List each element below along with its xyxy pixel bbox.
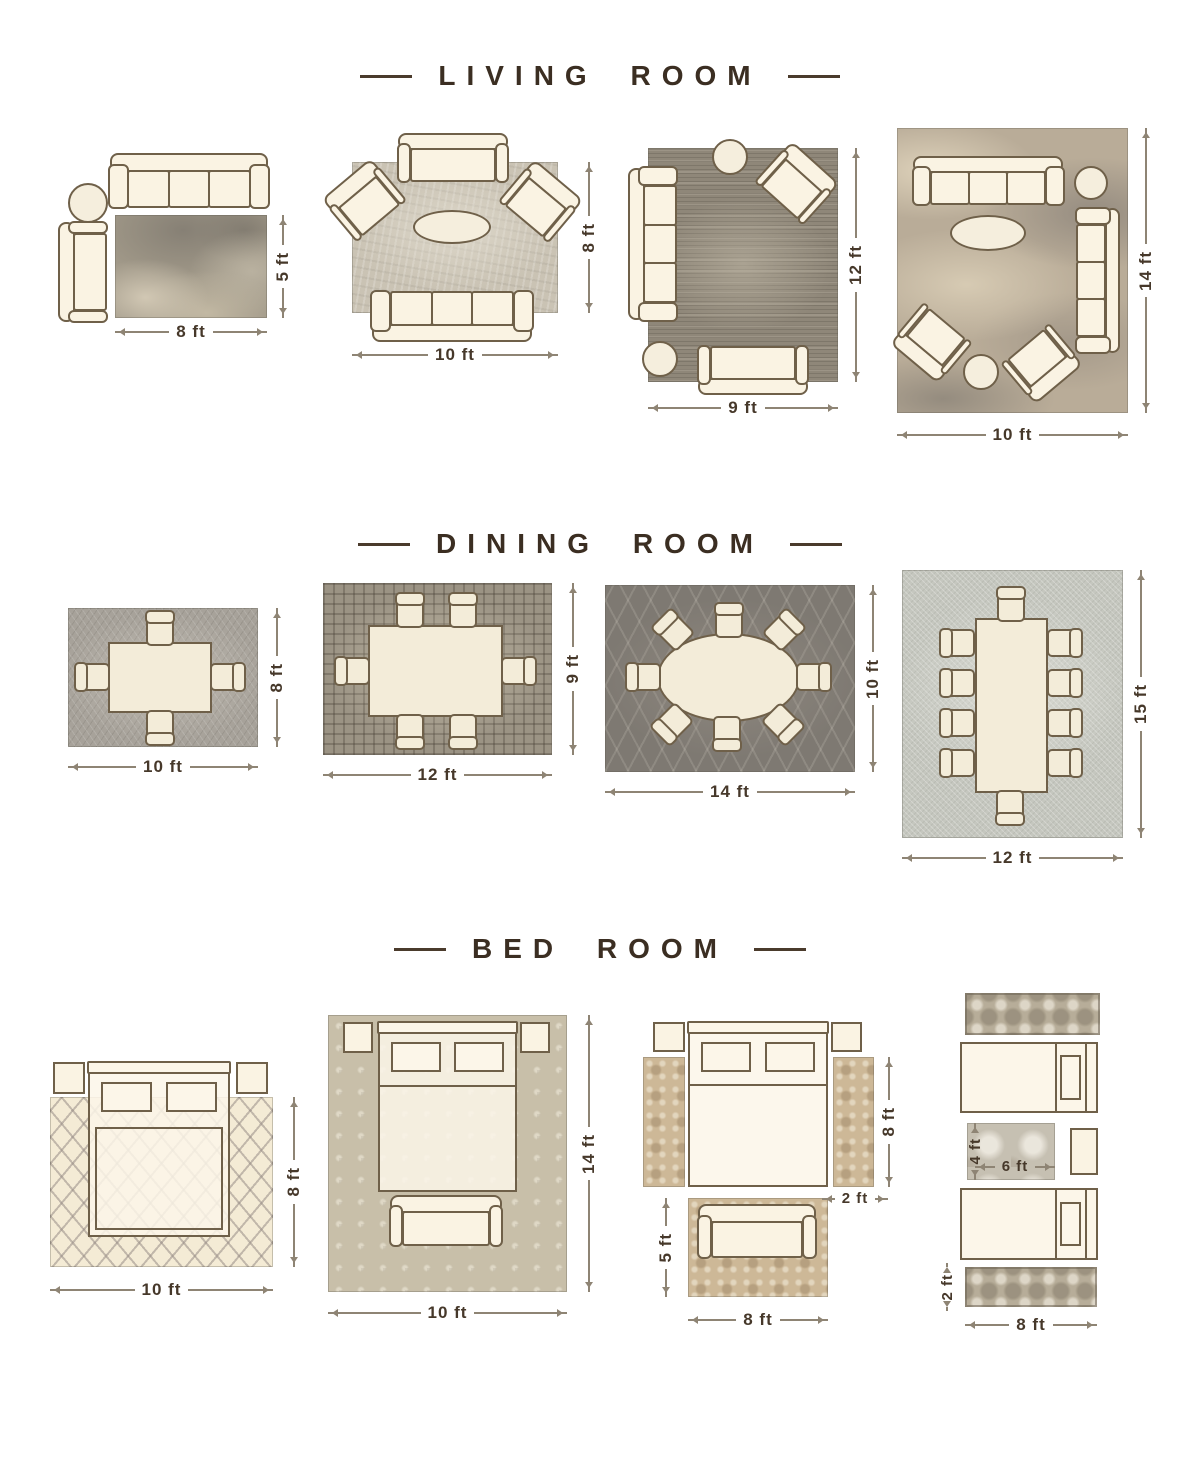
dining-chair: [1047, 669, 1077, 697]
nightstand: [653, 1022, 685, 1052]
bed-fold-line: [1055, 1190, 1057, 1258]
title-rule-right: [790, 543, 842, 546]
dining-chair: [396, 598, 424, 628]
bed: [378, 1022, 517, 1192]
bench: [698, 1204, 816, 1259]
title-rule-right: [754, 948, 806, 951]
pillow: [454, 1042, 504, 1072]
dimension-runner-length: 8 ft: [878, 1057, 900, 1187]
dimension-width: 10 ft: [68, 757, 258, 777]
dimension-width: 10 ft: [328, 1303, 567, 1323]
dining-table: [108, 642, 212, 713]
dining-chair: [449, 598, 477, 628]
sofa: [913, 156, 1063, 206]
pillow: [765, 1042, 815, 1072]
round-side-table: [642, 341, 678, 377]
headboard: [1085, 1188, 1098, 1260]
dimension-runner-height: 2 ft: [936, 1263, 958, 1311]
dimension-height: 9 ft: [562, 583, 584, 755]
dining-chair: [631, 663, 661, 691]
nightstand: [831, 1022, 862, 1052]
round-side-table: [712, 139, 748, 175]
title-rule-right: [788, 75, 840, 78]
dimension-rug-width: 6 ft: [975, 1158, 1055, 1175]
chaise: [58, 222, 108, 322]
pillow: [1060, 1202, 1081, 1247]
twin-bed: [960, 1188, 1098, 1260]
title-rule-left: [360, 75, 412, 78]
dining-chair: [945, 669, 975, 697]
dimension-height: 14 ft: [578, 1015, 600, 1292]
dimension-runner-width: 2 ft: [822, 1190, 888, 1207]
runner-rug: [643, 1057, 685, 1187]
oval-coffee-table: [413, 210, 491, 244]
sofa: [628, 168, 678, 320]
title-rule-left: [394, 948, 446, 951]
sofa: [398, 133, 508, 183]
pillow: [1060, 1055, 1081, 1099]
dimension-height: 8 ft: [283, 1097, 305, 1267]
headboard: [687, 1021, 829, 1034]
headboard: [87, 1061, 231, 1074]
blanket: [690, 1084, 826, 1185]
round-side-table: [1074, 166, 1108, 200]
rug-size-guide: LIVING ROOM 8 ft 5 ft 10 ft 8 ft: [0, 0, 1200, 1467]
dining-chair: [796, 663, 826, 691]
section-title-text: DINING ROOM: [436, 528, 764, 560]
nightstand: [236, 1062, 268, 1094]
dining-chair: [146, 710, 174, 740]
nightstand: [53, 1062, 85, 1094]
dimension-width: 12 ft: [902, 848, 1123, 868]
pillow: [101, 1082, 152, 1112]
bed-fold-line: [1055, 1044, 1057, 1111]
dining-chair: [80, 663, 110, 691]
bed: [688, 1022, 828, 1187]
dining-chair: [396, 714, 424, 744]
round-side-table: [963, 354, 999, 390]
sofa: [110, 153, 268, 209]
sofa: [1075, 208, 1120, 353]
dimension-height: 8 ft: [266, 608, 288, 747]
headboard: [1085, 1042, 1098, 1113]
dining-chair: [945, 709, 975, 737]
runner-rug: [833, 1057, 874, 1187]
headboard: [377, 1021, 518, 1034]
loveseat: [698, 345, 808, 395]
dimension-height: 14 ft: [1135, 128, 1157, 413]
bed: [88, 1062, 230, 1237]
dining-chair: [713, 716, 741, 746]
section-title-text: BED ROOM: [472, 933, 728, 965]
dining-chair: [210, 663, 240, 691]
blanket: [380, 1085, 515, 1190]
dining-table: [975, 618, 1048, 793]
section-title-dining-room: DINING ROOM: [0, 528, 1200, 560]
nightstand: [343, 1022, 373, 1053]
dimension-height: 5 ft: [272, 215, 294, 318]
runner-rug: [965, 1267, 1097, 1307]
blanket: [95, 1127, 223, 1230]
dimension-rug-width: 8 ft: [688, 1310, 828, 1330]
dimension-width: 10 ft: [352, 345, 558, 365]
dining-chair: [340, 657, 370, 685]
pillow: [701, 1042, 751, 1072]
dining-chair: [449, 714, 477, 744]
dining-chair: [1047, 709, 1077, 737]
dining-chair: [1047, 749, 1077, 777]
section-title-bed-room: BED ROOM: [0, 933, 1200, 965]
dimension-height: 8 ft: [578, 162, 600, 313]
dimension-width: 14 ft: [605, 782, 855, 802]
dining-chair: [146, 616, 174, 646]
dining-chair: [945, 749, 975, 777]
dining-chair: [1047, 629, 1077, 657]
dimension-height: 15 ft: [1130, 570, 1152, 838]
pillow: [391, 1042, 441, 1072]
section-title-living-room: LIVING ROOM: [0, 60, 1200, 92]
dimension-width: 8 ft: [115, 322, 267, 342]
sofa: [372, 290, 532, 342]
dimension-width: 9 ft: [648, 398, 838, 418]
dining-table: [368, 625, 503, 717]
rug: [115, 215, 267, 318]
nightstand: [1070, 1128, 1098, 1175]
pillow: [166, 1082, 217, 1112]
bench: [390, 1195, 502, 1247]
twin-bed: [960, 1042, 1098, 1113]
title-rule-left: [358, 543, 410, 546]
dimension-height: 12 ft: [845, 148, 867, 382]
dimension-height: 10 ft: [862, 585, 884, 772]
runner-rug: [965, 993, 1100, 1035]
dining-chair: [945, 629, 975, 657]
section-title-text: LIVING ROOM: [438, 60, 761, 92]
dining-chair: [996, 790, 1024, 820]
round-side-table: [68, 183, 108, 223]
dimension-runner-width: 8 ft: [965, 1315, 1097, 1335]
dimension-rug-height: 5 ft: [655, 1198, 677, 1297]
dimension-width: 12 ft: [323, 765, 552, 785]
dining-chair: [997, 592, 1025, 622]
dining-chair: [715, 608, 743, 638]
dining-chair: [501, 657, 531, 685]
nightstand: [520, 1022, 550, 1053]
oval-coffee-table: [950, 215, 1026, 251]
dimension-width: 10 ft: [897, 425, 1128, 445]
dimension-width: 10 ft: [50, 1280, 273, 1300]
